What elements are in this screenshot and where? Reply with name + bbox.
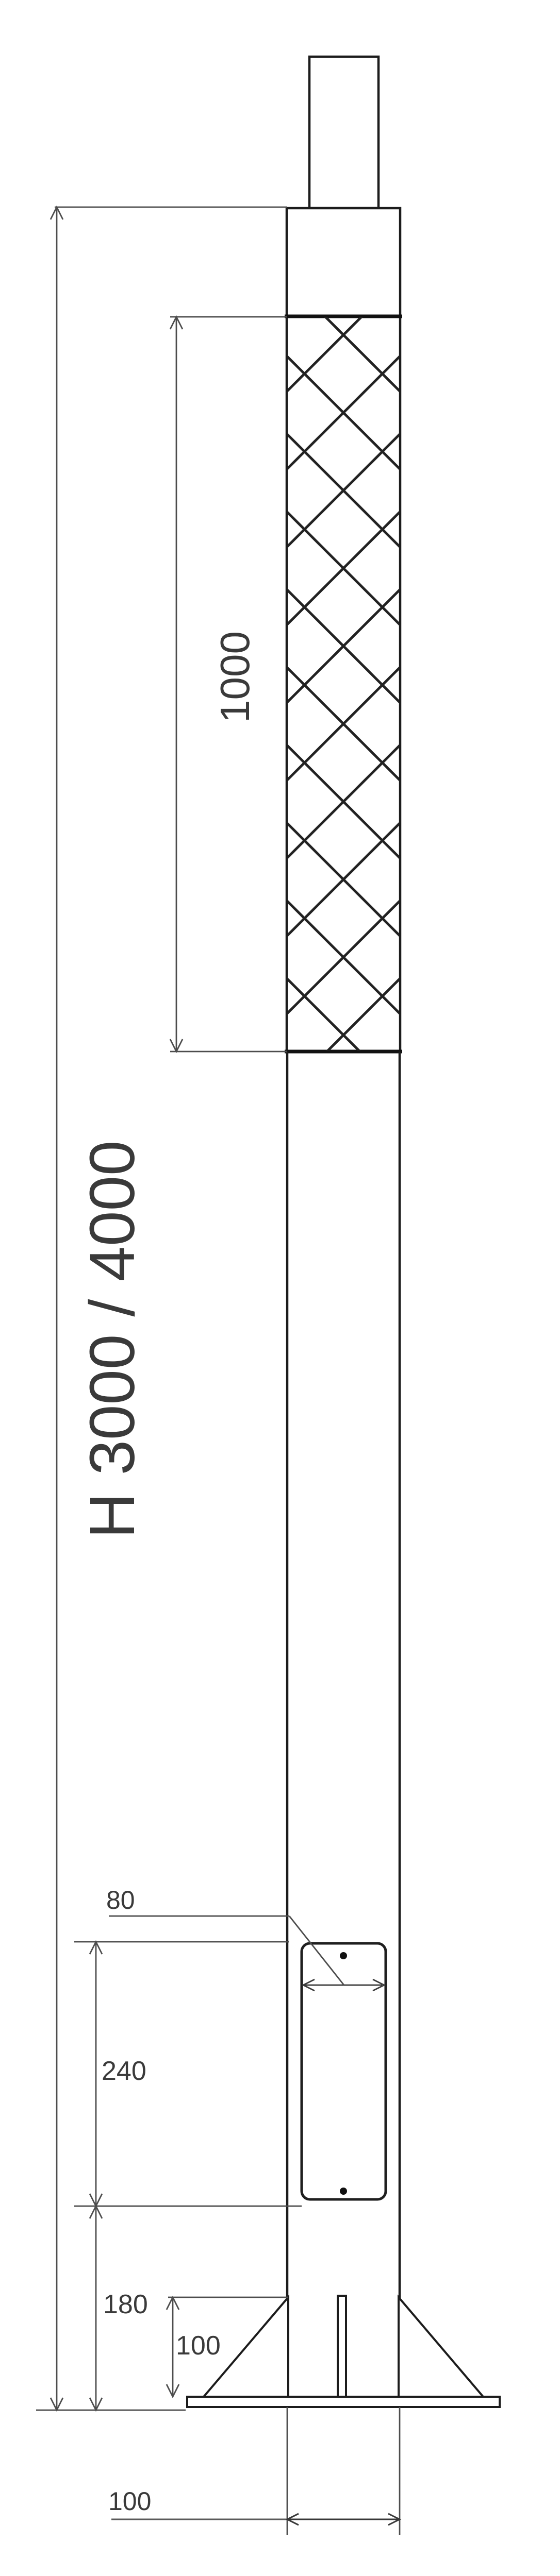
svg-text:H 3000 / 4000: H 3000 / 4000 <box>77 1141 148 1539</box>
svg-text:100: 100 <box>108 2487 151 2516</box>
svg-text:1000: 1000 <box>212 631 258 723</box>
svg-text:180: 180 <box>103 2290 148 2319</box>
svg-text:240: 240 <box>102 2056 146 2086</box>
svg-text:80: 80 <box>106 1886 135 1914</box>
svg-text:100: 100 <box>176 2331 221 2361</box>
